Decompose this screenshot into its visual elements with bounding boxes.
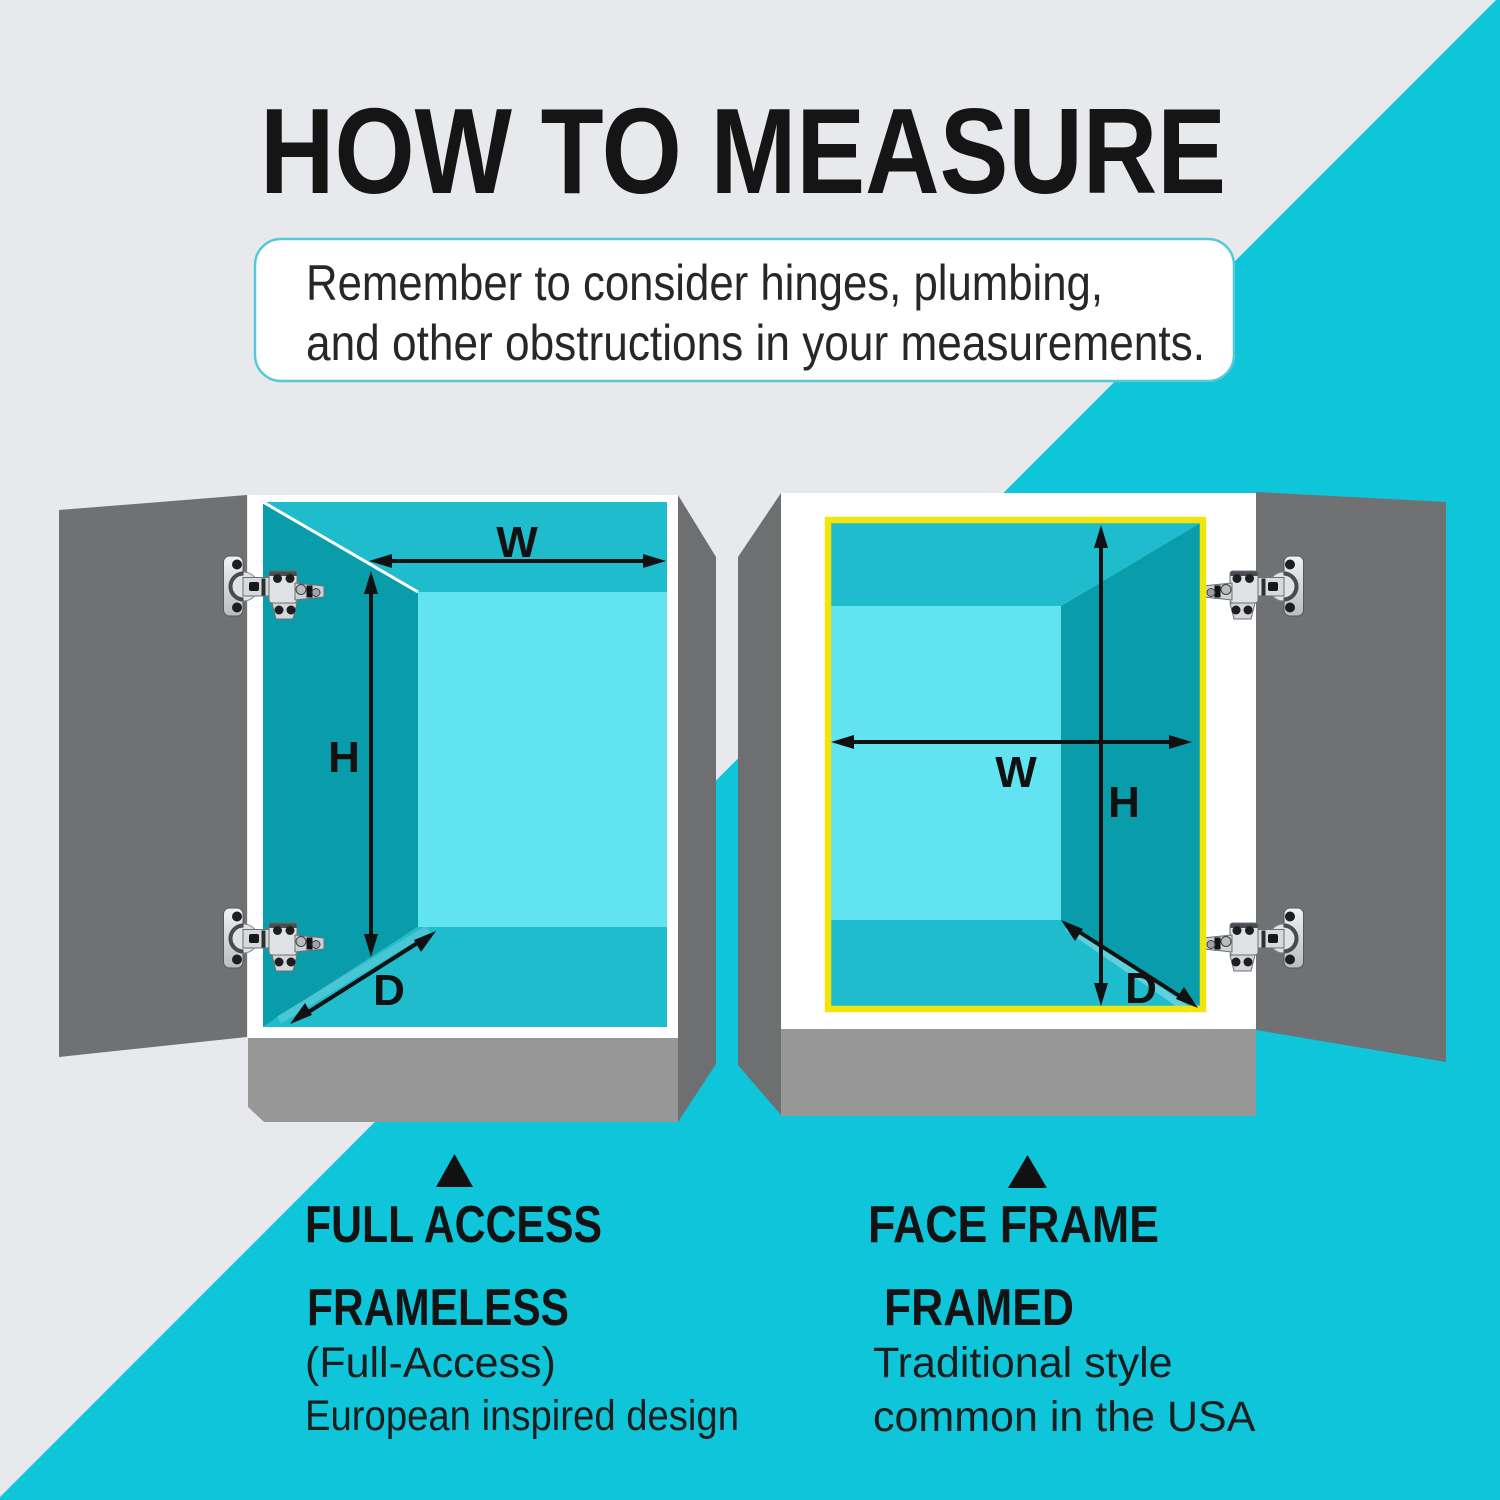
svg-text:FRAMELESS: FRAMELESS: [307, 1279, 569, 1337]
svg-text:common in the USA: common in the USA: [873, 1393, 1256, 1441]
svg-text:Remember to consider hinges, p: Remember to consider hinges, plumbing,: [306, 255, 1103, 311]
svg-text:FULL ACCESS: FULL ACCESS: [305, 1196, 602, 1254]
svg-text:FRAMED: FRAMED: [884, 1279, 1074, 1337]
svg-text:H: H: [328, 733, 360, 782]
svg-text:HOW TO MEASURE: HOW TO MEASURE: [260, 83, 1226, 219]
svg-text:W: W: [995, 748, 1037, 797]
svg-text:D: D: [373, 966, 405, 1015]
svg-text:(Full-Access): (Full-Access): [305, 1339, 556, 1387]
svg-text:FACE FRAME: FACE FRAME: [868, 1196, 1159, 1254]
svg-text:Traditional style: Traditional style: [873, 1339, 1173, 1387]
svg-text:D: D: [1125, 964, 1157, 1013]
svg-text:European inspired design: European inspired design: [305, 1392, 739, 1440]
svg-text:W: W: [496, 518, 538, 567]
svg-text:and other obstructions in your: and other obstructions in your measureme…: [306, 315, 1205, 371]
svg-text:H: H: [1108, 778, 1140, 827]
